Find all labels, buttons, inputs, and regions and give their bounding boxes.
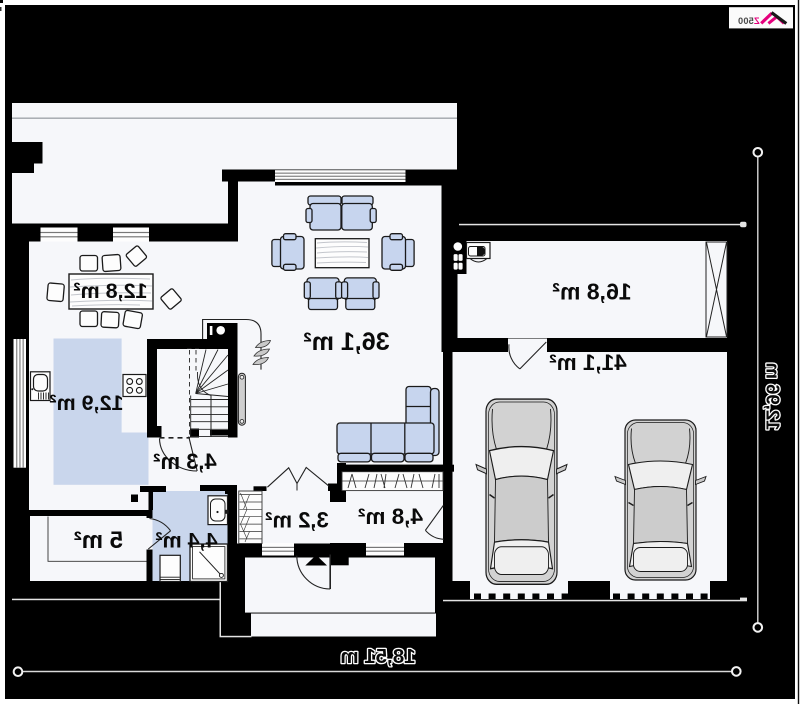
svg-text:16,8 m²: 16,8 m² <box>552 279 632 305</box>
svg-text:4,4 m²: 4,4 m² <box>155 529 217 553</box>
svg-text:12,8 m²: 12,8 m² <box>73 279 147 303</box>
svg-text:Z500: Z500 <box>738 16 760 26</box>
svg-text:3,2 m²: 3,2 m² <box>265 508 329 533</box>
svg-text:12,96 m: 12,96 m <box>763 363 784 431</box>
svg-text:41,1 m²: 41,1 m² <box>549 350 627 375</box>
svg-text:4,8 m²: 4,8 m² <box>357 504 423 529</box>
svg-text:5 m²: 5 m² <box>74 527 123 554</box>
svg-text:36,1 m²: 36,1 m² <box>303 328 389 356</box>
svg-text:4,3 m²: 4,3 m² <box>153 449 217 474</box>
svg-text:18,51 m: 18,51 m <box>340 645 415 668</box>
svg-text:12,9 m²: 12,9 m² <box>49 391 123 415</box>
